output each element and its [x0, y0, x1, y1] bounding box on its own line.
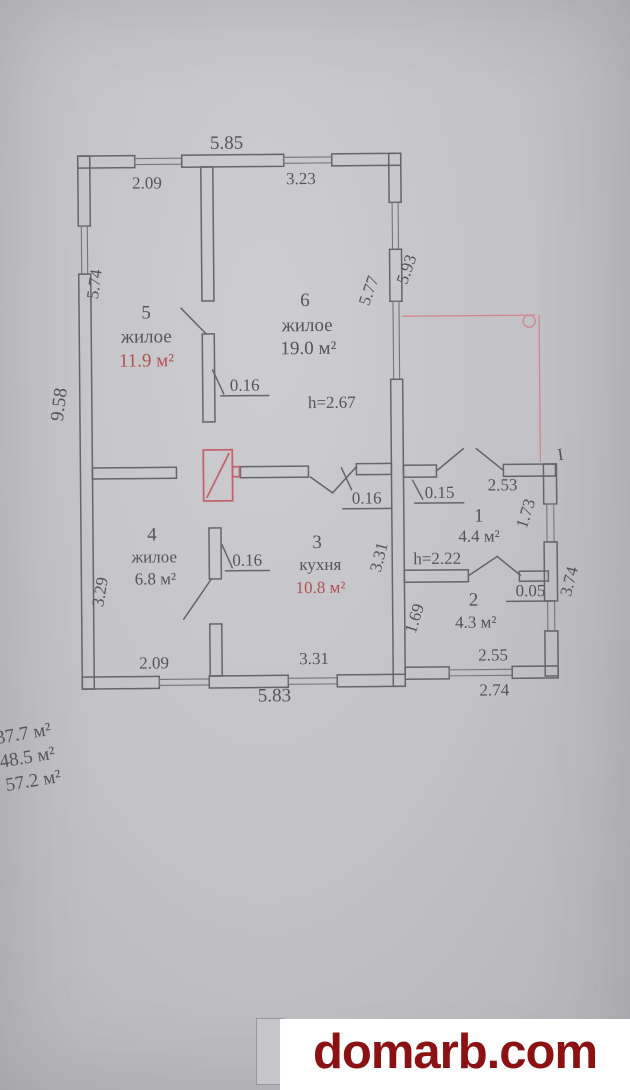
room2-area: 4.3 м² — [455, 612, 497, 631]
room1-number: 1 — [474, 506, 484, 527]
stove-symbol — [203, 450, 239, 501]
porch-red-outline — [402, 315, 540, 463]
room3-type: кухня — [299, 555, 341, 574]
room4-number: 4 — [147, 524, 157, 545]
dim-top-room6: 3.23 — [286, 169, 316, 188]
room5-number: 5 — [141, 302, 151, 323]
room1-area: 4.4 м² — [458, 526, 500, 545]
dim-annex-bottom-outer: 2.74 — [479, 680, 509, 699]
dim-right-room6-inner: 5.77 — [355, 273, 383, 308]
watermark-strip: domarb.com — [280, 1019, 630, 1090]
dim-annex-right: 3.74 — [556, 564, 582, 598]
dim-hall-right: 1.73 — [512, 496, 539, 530]
dim-hall-top: 2.53 — [488, 475, 518, 494]
porch-mark: I — [556, 445, 565, 465]
dim-bottom-room4: 2.09 — [139, 653, 169, 672]
dim-left-total: 9.58 — [47, 387, 72, 423]
ceiling-height-main: h=2.67 — [308, 393, 357, 412]
dimension-labels: 5.85 2.09 3.23 9.58 5.74 5.77 5.93 0.16 … — [44, 130, 583, 709]
room3-number: 3 — [312, 532, 322, 553]
dim-door-rooms56: 0.16 — [230, 376, 260, 395]
room3-area: 10.8 м² — [295, 578, 345, 597]
room5-area: 11.9 м² — [119, 350, 174, 371]
room2-number: 2 — [469, 590, 479, 611]
room6-area: 19.0 м² — [280, 338, 336, 359]
dim-door-kitchen: 0.16 — [352, 488, 382, 507]
door-swings — [181, 305, 555, 619]
floorplan-photo: 5 жилое 11.9 м² 6 жилое 19.0 м² 4 жилое … — [0, 0, 630, 1090]
room5-type: жилое — [120, 326, 172, 347]
room6-number: 6 — [300, 290, 310, 311]
room6-type: жилое — [281, 315, 333, 336]
room4-area: 6.8 м² — [135, 569, 177, 588]
floorplan-drawing: 5 жилое 11.9 м² 6 жилое 19.0 м² 4 жилое … — [0, 0, 630, 1090]
dim-top-width: 5.85 — [210, 133, 243, 154]
room4-type: жилое — [130, 547, 177, 566]
area-totals: 37.7 м² 48.5 м² 57.2 м² — [0, 719, 63, 797]
dim-door-room4: 0.16 — [232, 551, 262, 570]
room-labels: 5 жилое 11.9 м² 6 жилое 19.0 м² 4 жилое … — [118, 288, 500, 634]
dim-door-room2: 0.05 — [516, 581, 546, 600]
dim-right-room6-outer: 5.93 — [393, 252, 421, 286]
watermark-text: domarb.com — [313, 1028, 597, 1077]
dim-bottom-kitchen: 3.31 — [299, 649, 329, 668]
main-walls — [78, 153, 406, 689]
dim-left-room5: 5.74 — [83, 268, 106, 300]
dim-top-room5: 2.09 — [132, 173, 162, 192]
dim-kitchen-right: 3.31 — [366, 540, 392, 574]
dim-bottom-width: 5.83 — [258, 685, 291, 706]
ceiling-height-annex: h=2.22 — [413, 549, 461, 568]
partition-walls — [90, 165, 393, 677]
dim-left-room4: 3.29 — [88, 576, 112, 608]
dim-room2-bottom-inner: 2.55 — [478, 645, 508, 664]
dim-door-hall: 0.15 — [425, 483, 455, 502]
